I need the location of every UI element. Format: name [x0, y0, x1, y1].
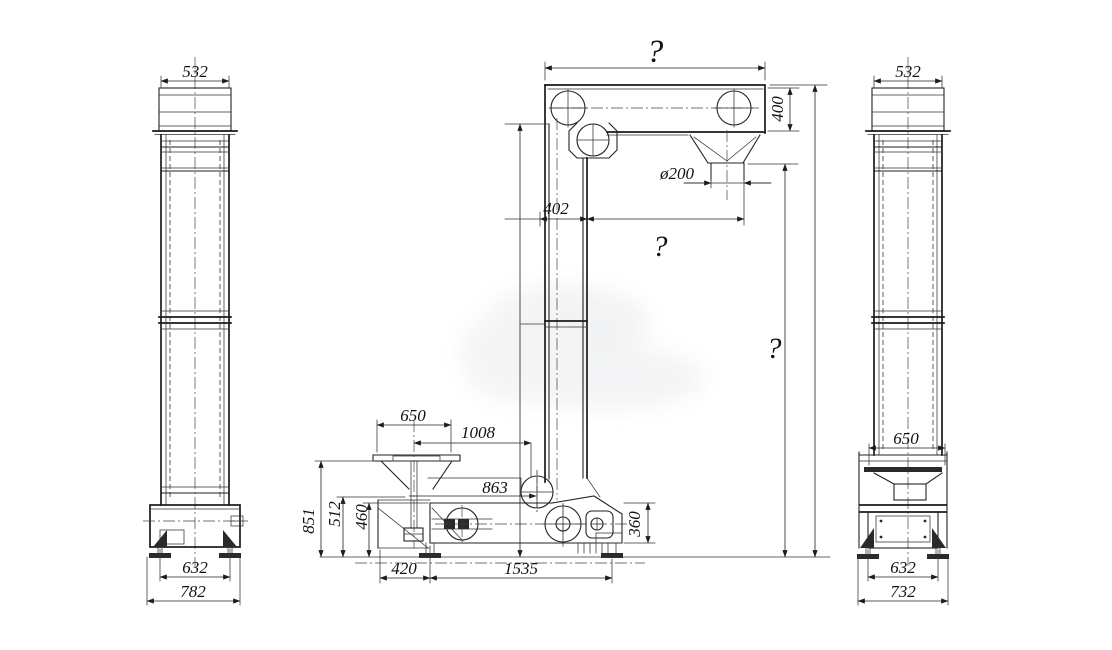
dim-feed-plate: 863	[409, 478, 536, 497]
discharge-spout	[690, 130, 760, 200]
dim-label-right-650: 650	[893, 429, 919, 448]
dim-label-402: 402	[543, 199, 569, 218]
dim-label-1535: 1535	[504, 559, 538, 578]
dim-label-right-732: 732	[890, 582, 916, 601]
dim-label-650: 650	[400, 406, 426, 425]
dim-label-left-782: 782	[180, 582, 206, 601]
dim-label-360: 360	[625, 511, 644, 538]
dim-label-left-532: 532	[182, 62, 208, 81]
right-side-view: 532 650 632 732	[857, 57, 950, 605]
head-section	[545, 85, 765, 158]
dim-head-length: ?	[545, 34, 765, 80]
dim-label-right-532: 532	[895, 62, 921, 81]
dim-boot-length: 1535	[430, 559, 612, 583]
dim-boot-end-height: 360	[624, 503, 655, 543]
dim-label-reach: ?	[653, 230, 668, 263]
dim-discharge-height: ?	[748, 85, 827, 557]
dim-label-400: 400	[768, 96, 787, 122]
dim-label-left-632: 632	[182, 558, 208, 577]
dim-label-dia200: ø200	[659, 164, 695, 183]
dim-spout-diameter: ø200	[659, 164, 771, 225]
technical-drawing-canvas: 532 632 782	[0, 0, 1112, 650]
dim-label-right-632: 632	[890, 558, 916, 577]
left-side-view: 532 632 782	[143, 57, 248, 605]
dim-label-420: 420	[391, 559, 417, 578]
dim-label-512: 512	[325, 501, 344, 527]
dim-leg-to-spout: ?	[587, 219, 744, 263]
dim-label-863: 863	[482, 478, 508, 497]
dim-hopper-overhang: 420	[380, 546, 430, 583]
dim-label-height: ?	[767, 332, 782, 365]
dim-frame-height: 460	[352, 503, 428, 557]
dim-label-851: 851	[299, 508, 318, 534]
boot-section	[419, 496, 632, 558]
dim-label-460: 460	[352, 504, 371, 530]
dim-label-1008: 1008	[461, 423, 496, 442]
dim-head-height: 400	[768, 88, 799, 131]
dim-right-hopper-width: 650	[869, 429, 945, 465]
dim-leg-width: 402	[505, 199, 587, 226]
dim-hopper-to-leg: 1008	[414, 423, 531, 477]
dim-label-head-length: ?	[647, 34, 664, 70]
bucket-elevator-drawing: 532 632 782	[0, 0, 1112, 650]
